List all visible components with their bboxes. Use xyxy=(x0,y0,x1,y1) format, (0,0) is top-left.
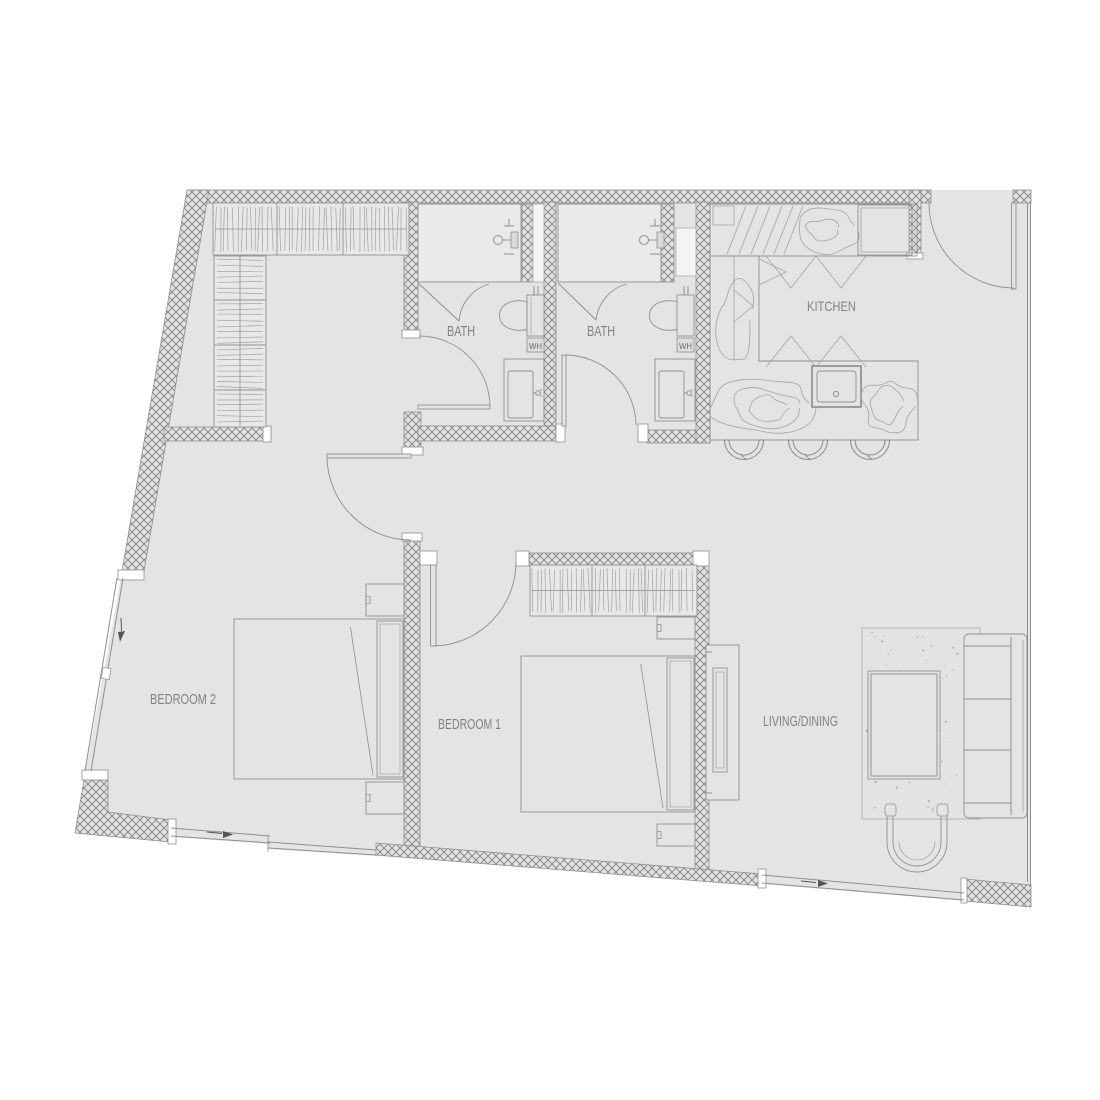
svg-text:BATH: BATH xyxy=(587,323,615,340)
svg-text:WH: WH xyxy=(529,342,542,351)
svg-text:BEDROOM 1: BEDROOM 1 xyxy=(438,716,501,733)
svg-text:BATH: BATH xyxy=(447,323,475,340)
svg-text:WH: WH xyxy=(679,342,692,351)
svg-text:LIVING/DINING: LIVING/DINING xyxy=(763,713,838,730)
svg-text:KITCHEN: KITCHEN xyxy=(807,298,856,314)
svg-text:BEDROOM 2: BEDROOM 2 xyxy=(150,691,216,708)
